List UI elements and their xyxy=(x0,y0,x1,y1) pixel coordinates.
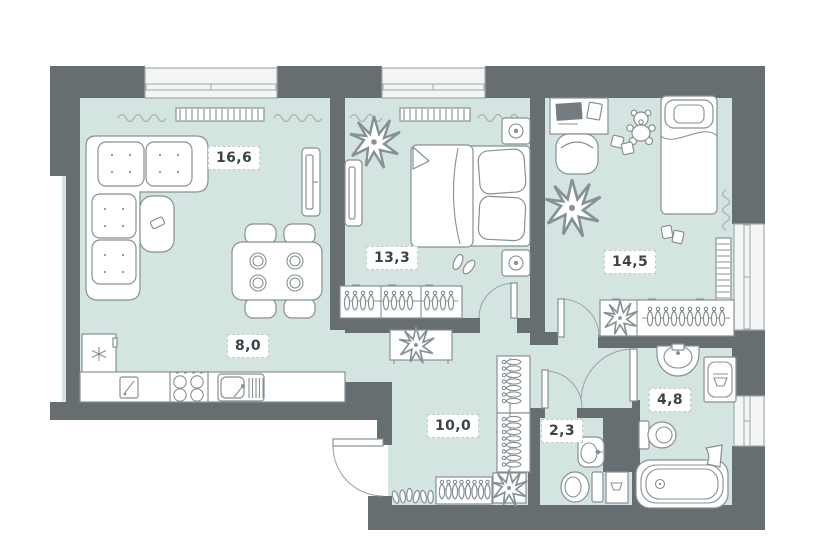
window-bedroom xyxy=(382,68,485,98)
plant-stand-icon xyxy=(492,470,527,506)
radiator-icon xyxy=(716,238,731,304)
chair-icon xyxy=(556,134,598,174)
shower-curtain-icon xyxy=(706,445,722,467)
water-heater-icon xyxy=(606,472,628,503)
window-bathroom xyxy=(734,396,764,446)
floor-plan: 16,6 13,3 14,5 8,0 10,0 2,3 4,8 xyxy=(0,0,818,555)
monitor-icon xyxy=(555,102,582,121)
tv-icon xyxy=(345,160,362,226)
coat-rack-icon xyxy=(436,477,492,504)
chair-icon xyxy=(245,298,276,318)
room-label-bathroom: 4,8 xyxy=(649,388,691,412)
chair-icon xyxy=(284,224,315,244)
radiator-icon xyxy=(400,108,470,121)
room-label-bedroom: 13,3 xyxy=(366,246,418,270)
tv-icon xyxy=(302,148,320,216)
chair-icon xyxy=(245,224,276,244)
bed-single-icon xyxy=(661,96,717,214)
cutting-board-icon xyxy=(120,377,138,398)
wardrobe-icon xyxy=(340,285,462,318)
console-table-icon xyxy=(390,327,452,364)
toilet-icon xyxy=(561,472,603,502)
room-label-wc: 2,3 xyxy=(541,419,583,443)
bed-double-icon xyxy=(411,145,530,247)
sink-icon xyxy=(218,374,264,401)
room-label-kitchen: 8,0 xyxy=(227,334,269,358)
room-label-living-room: 16,6 xyxy=(208,146,260,170)
radiator-icon xyxy=(176,108,264,121)
wardrobe-icon xyxy=(600,299,734,336)
desk-icon xyxy=(550,98,608,134)
washing-machine-icon xyxy=(704,357,736,402)
nightstand-icon xyxy=(502,250,530,276)
room-label-hallway: 10,0 xyxy=(427,414,479,438)
window-kids xyxy=(734,224,764,330)
toilet-icon xyxy=(639,421,676,449)
nightstand-icon xyxy=(502,118,530,144)
room-label-kids-room: 14,5 xyxy=(604,250,656,274)
paper-icon xyxy=(587,102,603,120)
floor-plan-drawing xyxy=(0,0,818,555)
wardrobe-icon xyxy=(497,356,530,472)
coffee-table-icon xyxy=(140,196,174,252)
chair-icon xyxy=(284,298,315,318)
entrance-door xyxy=(333,439,383,496)
window-living xyxy=(145,68,277,98)
fridge-icon xyxy=(82,334,117,374)
stove-icon xyxy=(170,372,208,402)
kitchen-counter xyxy=(80,372,345,402)
